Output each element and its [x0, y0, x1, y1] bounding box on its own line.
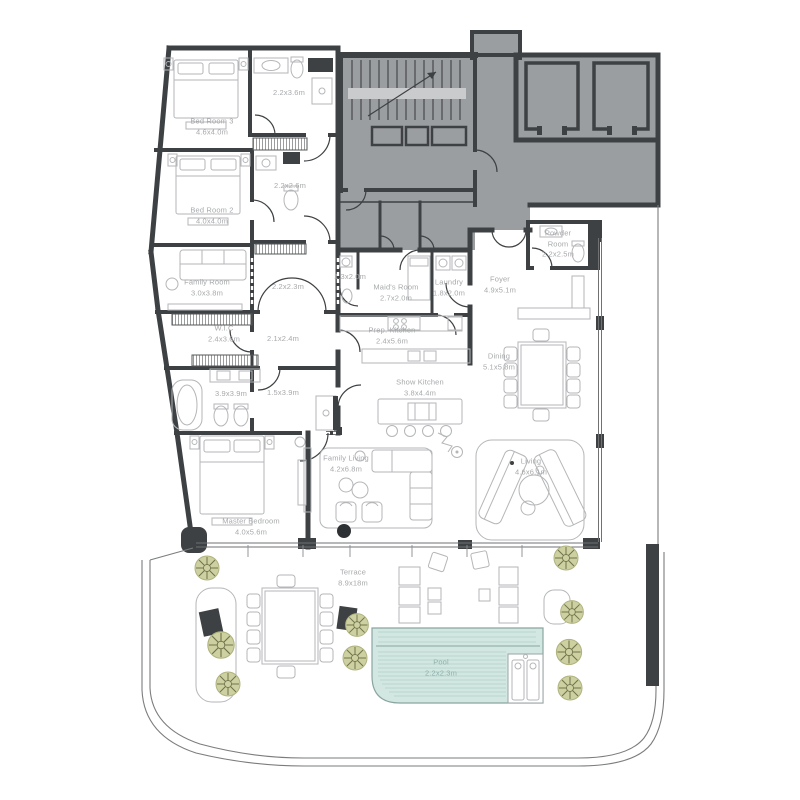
room-label-bath-2: 2.2x2.6m — [274, 181, 306, 192]
bed-icon-master — [190, 436, 306, 525]
show-kitchen-island — [378, 399, 462, 437]
room-label-bed-room-2: Bed Room 24.0x4.0m — [190, 206, 233, 227]
room-label-bed-room-3: Bed Room 34.6x4.0m — [190, 117, 233, 138]
room-label-maid-bath: 1.3x2.0m — [334, 272, 366, 283]
room-label-family-living: Family Living4.2x6.8m — [323, 454, 369, 475]
room-label-hall-21: 2.1x2.4m — [267, 334, 299, 345]
master-bath-fixtures — [172, 369, 338, 430]
room-label-living: Living4.6x6.1m — [515, 457, 547, 478]
room-label-family-room: Family Room3.0x3.8m — [184, 278, 230, 299]
room-label-maids-room: Maid's Room2.7x2.0m — [373, 283, 418, 304]
room-label-terrace: Terrace8.9x18m — [338, 568, 368, 589]
tree-icon — [558, 676, 582, 700]
room-label-laundry: Laundry1.8x2.0m — [433, 278, 465, 299]
tree-icon — [343, 646, 367, 670]
room-label-master-bath: 3.9x3.9m — [215, 389, 247, 400]
room-label-wic: W.I.C2.4x3.6m — [208, 324, 240, 345]
tree-icon — [554, 546, 578, 570]
tree-icon — [195, 556, 219, 580]
room-label-foyer: Foyer4.9x5.1m — [484, 275, 516, 296]
floor-plan-drawing — [0, 0, 800, 800]
room-label-pool: Pool2.2x2.3m — [425, 658, 457, 679]
room-label-hall-15: 1.5x3.9m — [267, 388, 299, 399]
terrace-dining-table — [247, 575, 333, 678]
foyer-furniture — [518, 276, 590, 319]
pool — [372, 628, 543, 703]
tree-icon — [346, 614, 369, 637]
room-label-dining: Dining5.1x5.8m — [483, 352, 515, 373]
tree-icon — [208, 632, 234, 658]
room-label-bath-3: 2.2x3.6m — [273, 88, 305, 99]
dining-table — [504, 329, 580, 421]
room-label-powder-room: Powder Room2.2x2.5m — [535, 228, 581, 260]
sun-loungers — [399, 551, 518, 623]
room-label-closet: 2.2x2.3m — [272, 282, 304, 293]
tree-icon — [561, 601, 584, 624]
column-dot — [337, 524, 351, 538]
elevator-1 — [526, 63, 578, 129]
room-label-show-kitchen: Show Kitchen3.8x4.4m — [396, 378, 444, 399]
floor-lamp-icon — [438, 433, 463, 458]
terrace-wall-strip — [646, 544, 659, 686]
floor-plan-canvas: Bed Room 34.6x4.0m 2.2x3.6m 2.2x2.6m Bed… — [0, 0, 800, 800]
room-label-master-bedroom: Master Bedroom4.0x5.6m — [222, 517, 280, 538]
building-core — [338, 32, 658, 250]
living-sofas — [476, 440, 588, 540]
tree-icon — [556, 639, 581, 664]
tree-icon — [216, 672, 240, 696]
pool-deck-loungers — [508, 654, 543, 703]
terrace — [142, 544, 664, 766]
entry-double-door — [492, 230, 526, 247]
room-label-prep-kitchen: Prep. Kitchen2.4x5.6m — [369, 326, 416, 347]
elevator-2 — [594, 63, 648, 129]
